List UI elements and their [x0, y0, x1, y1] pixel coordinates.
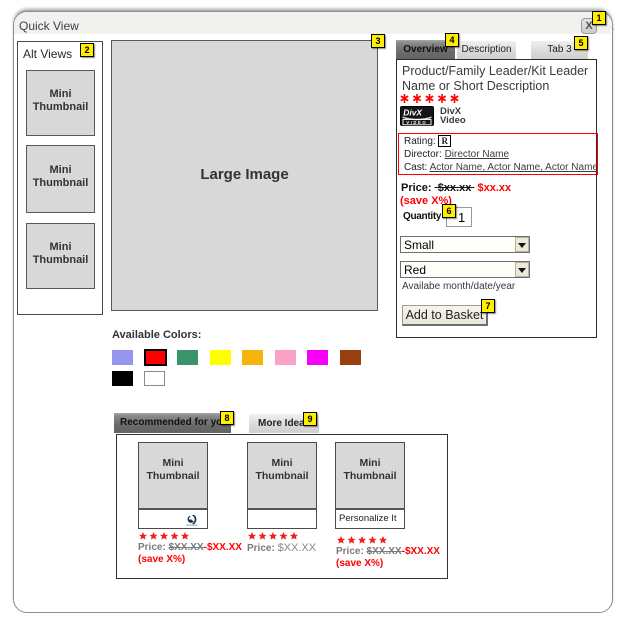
svg-text:VIDEO: VIDEO: [406, 120, 427, 125]
svg-text:DivX: DivX: [403, 108, 423, 118]
